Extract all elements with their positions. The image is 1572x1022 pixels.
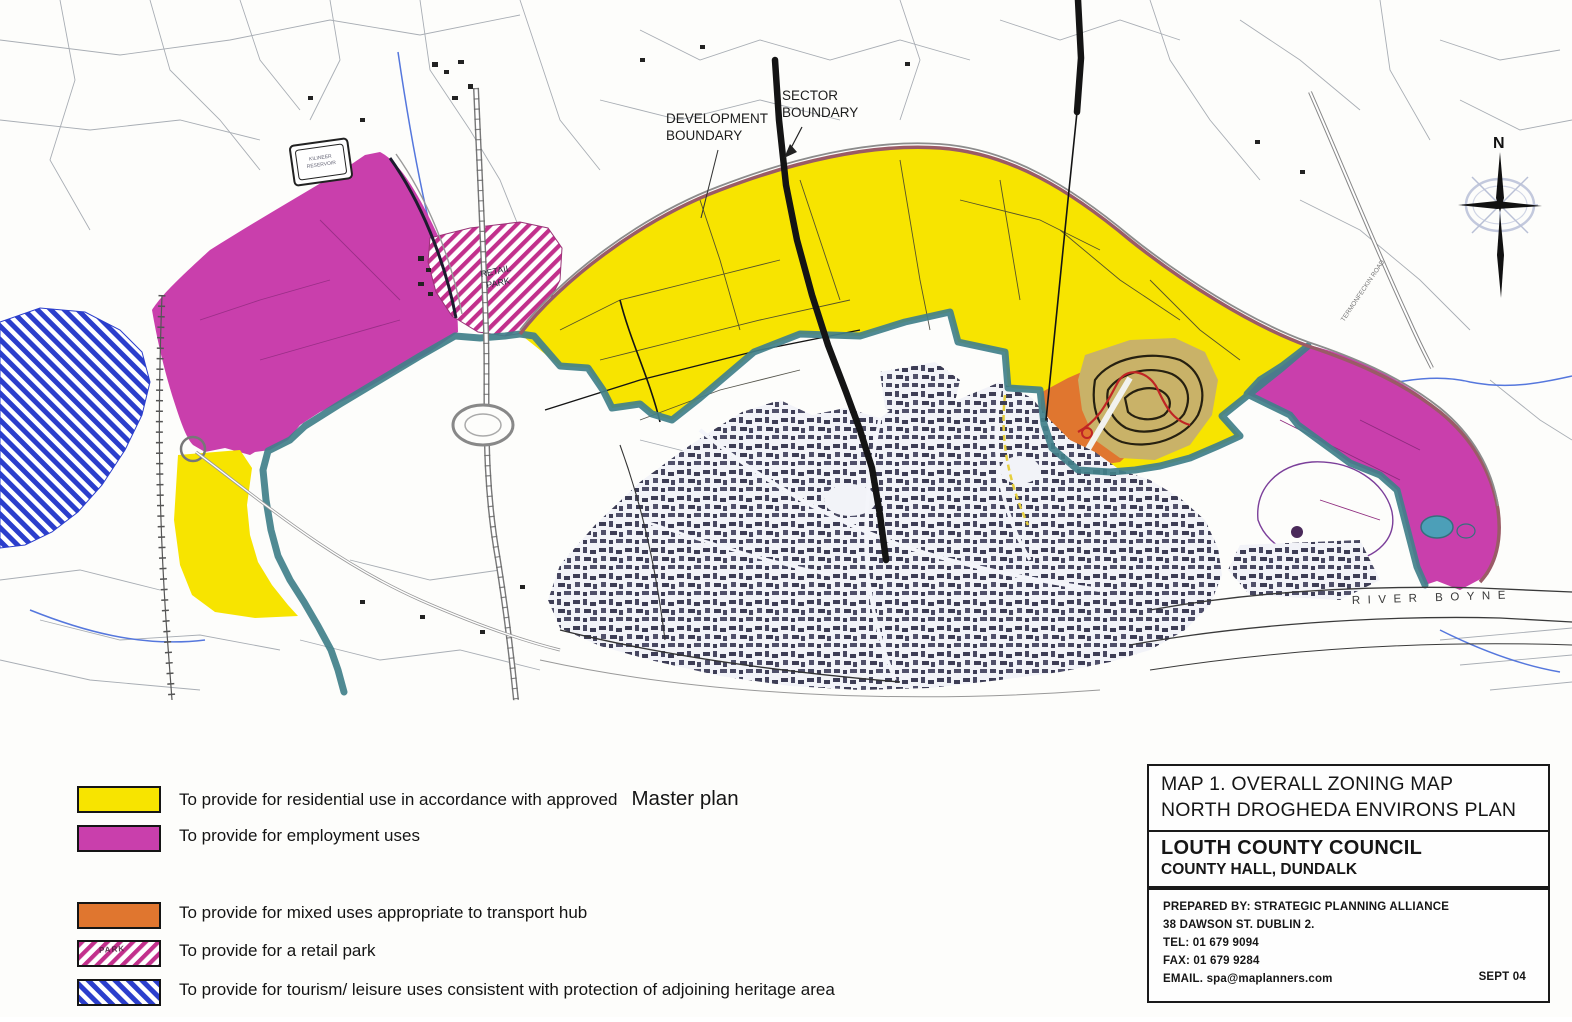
legend-label-tourism: To provide for tourism/ leisure uses con… — [179, 980, 835, 1000]
reservoir: KILINEER RESERVOIR — [289, 138, 352, 186]
tourism-swatch — [77, 979, 157, 1002]
svg-text:BOUNDARY: BOUNDARY — [666, 128, 742, 143]
pond — [1421, 516, 1453, 538]
legend-item-employment: To provide for employment uses — [77, 825, 420, 848]
authority-address: COUNTY HALL, DUNDALK — [1161, 861, 1536, 879]
svg-text:DEVELOPMENT: DEVELOPMENT — [666, 111, 768, 126]
prepared-by: PREPARED BY: STRATEGIC PLANNING ALLIANCE — [1163, 899, 1534, 917]
compass-north-label: N — [1493, 135, 1505, 152]
residential-swatch — [77, 786, 157, 809]
map-title-line1: MAP 1. OVERALL ZONING MAP — [1161, 772, 1536, 798]
map-title-line2: NORTH DROGHEDA ENVIRONS PLAN — [1161, 798, 1536, 824]
scanned-zoning-map-page: KILINEER RESERVOIR RIVER BOYNE TERMONFEC… — [0, 0, 1572, 1017]
prepared-by-section: PREPARED BY: STRATEGIC PLANNING ALLIANCE… — [1149, 890, 1548, 1000]
map-title-block: MAP 1. OVERALL ZONING MAP NORTH DROGHEDA… — [1147, 764, 1550, 1003]
legend-item-retail-park: PARK To provide for a retail park — [77, 940, 376, 963]
legend-label-retail-park: To provide for a retail park — [179, 941, 376, 961]
authority-section: LOUTH COUNTY COUNCIL COUNTY HALL, DUNDAL… — [1149, 832, 1548, 890]
preparer-tel: TEL: 01 679 9094 — [1163, 935, 1534, 953]
employment-swatch — [77, 825, 157, 848]
legend-label-employment: To provide for employment uses — [179, 826, 420, 846]
legend-label-mixed-use: To provide for mixed uses appropriate to… — [179, 903, 587, 923]
preparer-address: 38 DAWSON ST. DUBLIN 2. — [1163, 917, 1534, 935]
map-date: SEPT 04 — [1479, 969, 1526, 987]
title-section: MAP 1. OVERALL ZONING MAP NORTH DROGHEDA… — [1149, 766, 1548, 832]
legend-item-tourism: To provide for tourism/ leisure uses con… — [77, 979, 835, 1002]
retail-park-swatch-text: PARK — [99, 944, 126, 955]
retail-park-swatch: PARK — [77, 940, 157, 963]
mixed-use-swatch — [77, 902, 157, 925]
legend-label-residential: To provide for residential use in accord… — [179, 787, 739, 811]
svg-text:SECTOR: SECTOR — [782, 88, 838, 103]
legend-item-residential: To provide for residential use in accord… — [77, 786, 739, 811]
authority-name: LOUTH COUNTY COUNCIL — [1161, 837, 1536, 860]
legend-item-mixed-use: To provide for mixed uses appropriate to… — [77, 902, 587, 925]
svg-text:BOUNDARY: BOUNDARY — [782, 105, 858, 120]
